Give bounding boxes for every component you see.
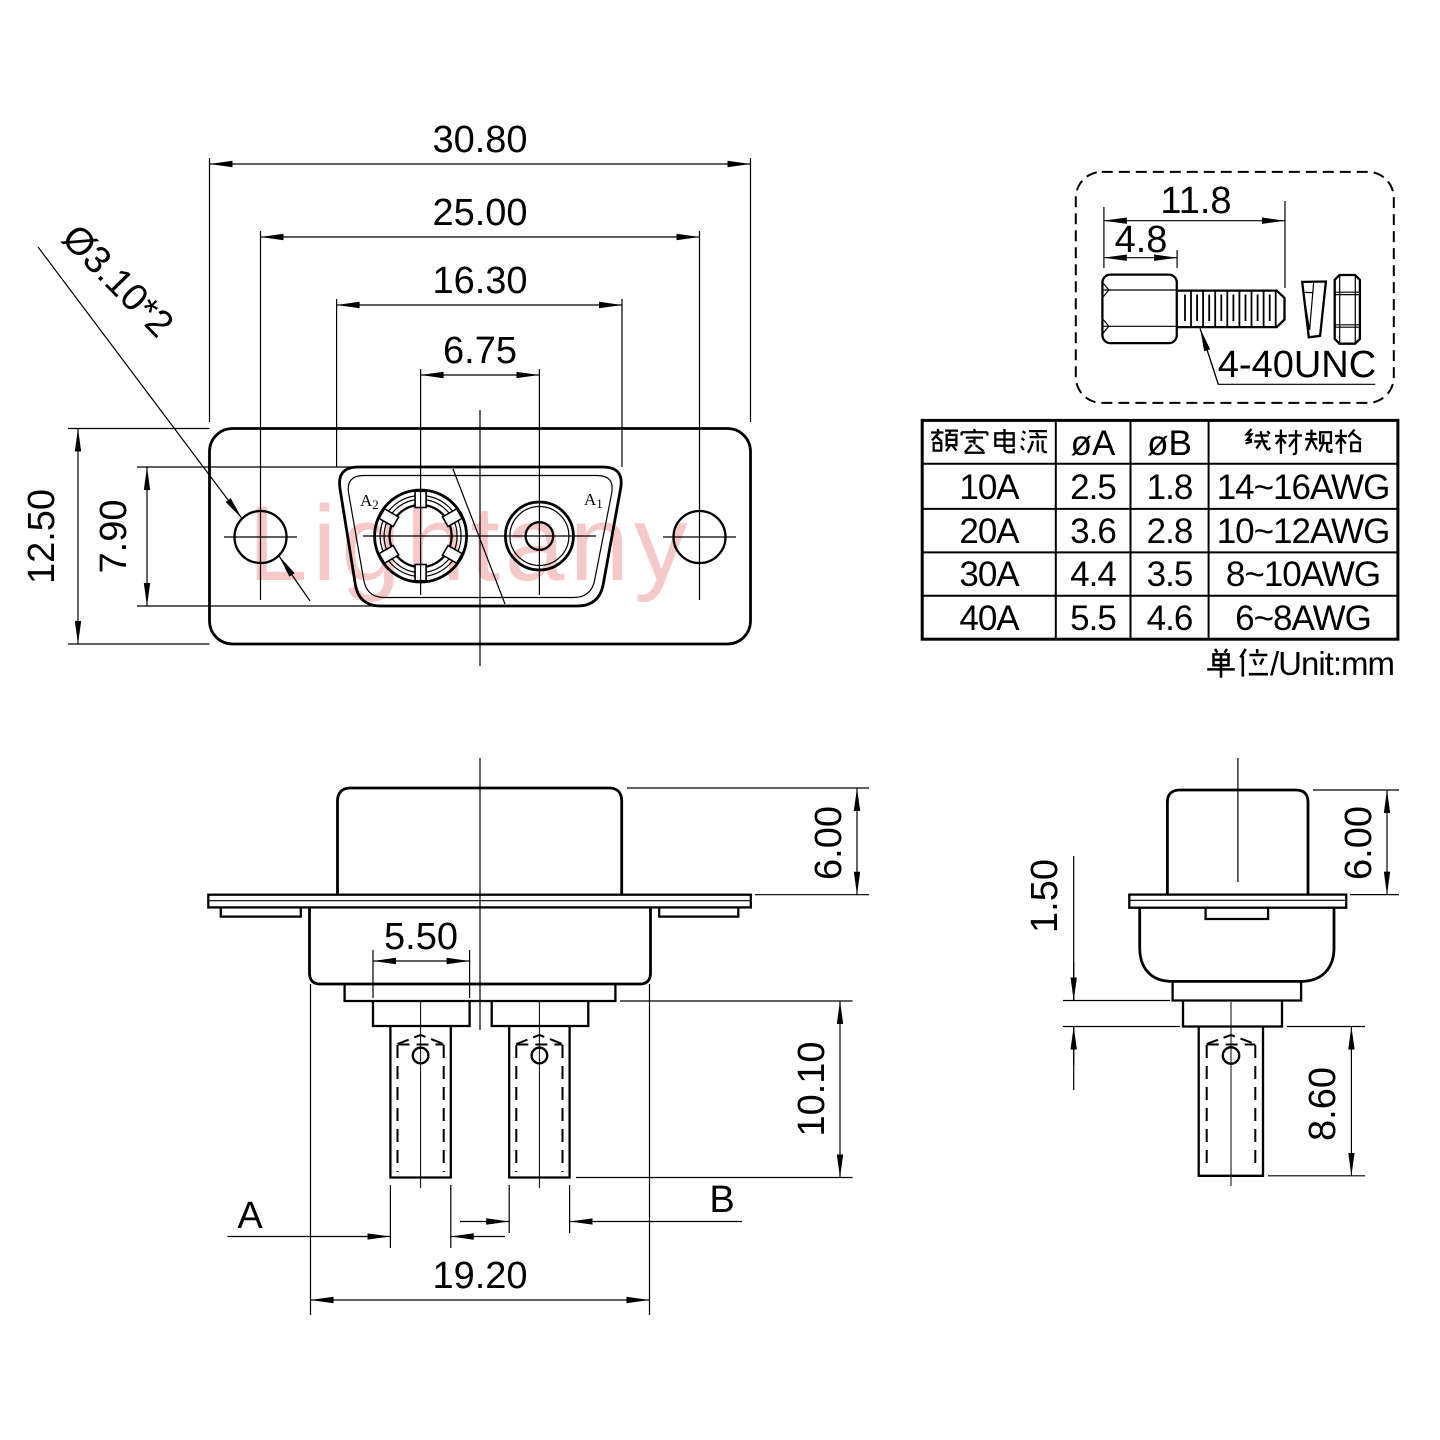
svg-text:B: B	[709, 1179, 734, 1221]
svg-text:30A: 30A	[959, 555, 1020, 594]
svg-text:A: A	[237, 1195, 263, 1237]
svg-text:5.50: 5.50	[384, 916, 458, 958]
svg-text:2.8: 2.8	[1147, 512, 1193, 551]
svg-text:3.5: 3.5	[1147, 555, 1193, 594]
svg-text:3.6: 3.6	[1070, 512, 1116, 551]
svg-text:6~8AWG: 6~8AWG	[1235, 599, 1371, 638]
svg-text:8.60: 8.60	[1302, 1067, 1344, 1141]
svg-text:30.80: 30.80	[432, 119, 527, 161]
svg-text:5.5: 5.5	[1070, 599, 1116, 638]
svg-text:40A: 40A	[959, 599, 1020, 638]
svg-text:19.20: 19.20	[432, 1255, 527, 1297]
svg-text:4.8: 4.8	[1115, 219, 1168, 261]
svg-text:12.50: 12.50	[21, 489, 63, 584]
svg-text:1.50: 1.50	[1024, 859, 1066, 933]
svg-text:øA: øA	[1071, 424, 1116, 463]
svg-text:øB: øB	[1147, 424, 1192, 463]
svg-text:10.10: 10.10	[791, 1041, 833, 1136]
svg-text:7.90: 7.90	[93, 500, 135, 574]
svg-text:10A: 10A	[959, 468, 1020, 507]
svg-text:20A: 20A	[959, 512, 1020, 551]
svg-text:10~12AWG: 10~12AWG	[1217, 512, 1390, 551]
svg-text:1.8: 1.8	[1147, 468, 1193, 507]
svg-text:4.6: 4.6	[1147, 599, 1193, 638]
svg-text:4-40UNC: 4-40UNC	[1218, 344, 1376, 386]
svg-text:6.00: 6.00	[808, 806, 850, 880]
svg-text:2.5: 2.5	[1070, 468, 1116, 507]
svg-text:14~16AWG: 14~16AWG	[1217, 468, 1390, 507]
svg-text:11.8: 11.8	[1160, 180, 1231, 222]
svg-text:25.00: 25.00	[432, 192, 527, 234]
svg-text:8~10AWG: 8~10AWG	[1226, 555, 1380, 594]
svg-text:16.30: 16.30	[432, 260, 527, 302]
svg-text:6.00: 6.00	[1338, 806, 1380, 880]
svg-text:6.75: 6.75	[443, 330, 517, 372]
svg-text:4.4: 4.4	[1070, 555, 1116, 594]
svg-text:/Unit:mm: /Unit:mm	[1270, 645, 1394, 682]
svg-text:Lightany: Lightany	[248, 483, 693, 603]
